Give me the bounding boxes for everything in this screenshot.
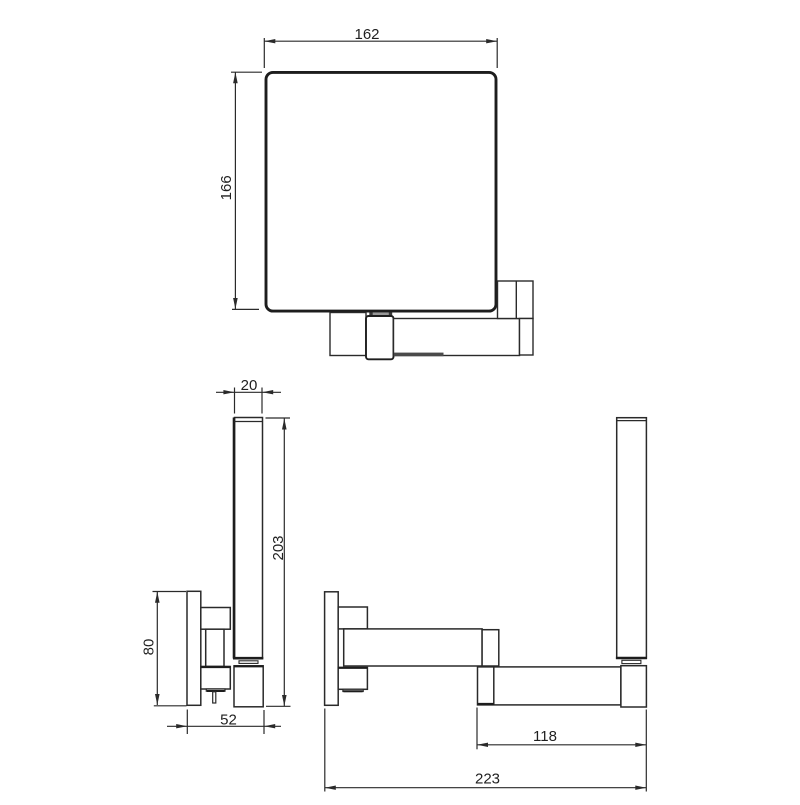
svg-text:20: 20 (241, 377, 258, 394)
svg-text:118: 118 (533, 728, 557, 745)
svg-text:80: 80 (141, 639, 158, 656)
svg-text:203: 203 (270, 535, 287, 560)
svg-text:223: 223 (475, 771, 500, 788)
svg-text:166: 166 (218, 175, 235, 200)
svg-text:162: 162 (354, 26, 379, 43)
